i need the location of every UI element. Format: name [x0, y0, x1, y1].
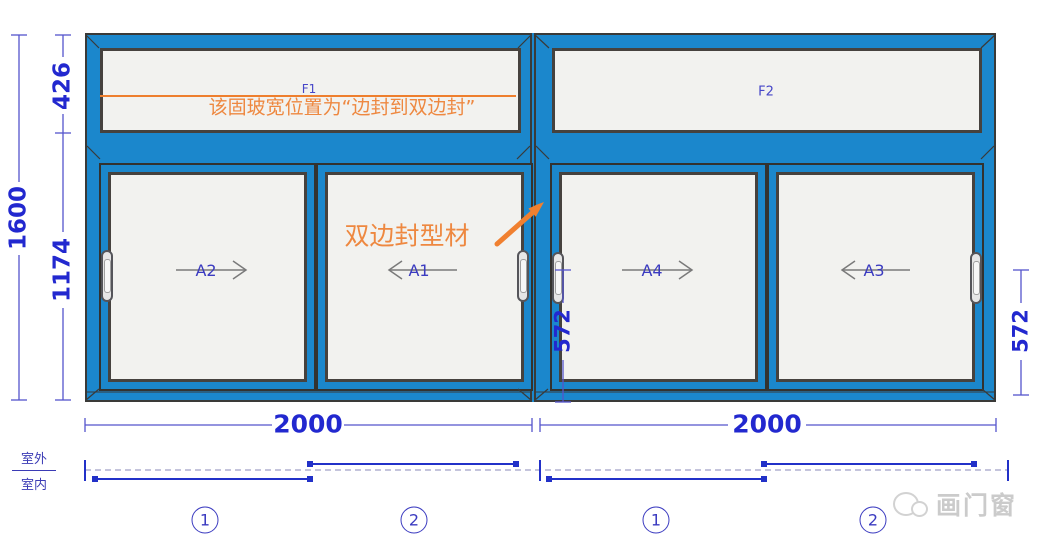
dim-total-height[interactable]: 1600: [8, 186, 31, 250]
chat-bubble-small-icon: [911, 501, 928, 517]
track-position-2-right: 2: [860, 507, 887, 534]
dim-left-width[interactable]: 2000: [273, 412, 343, 437]
handle-a1[interactable]: [517, 250, 529, 302]
sash-label-a4[interactable]: A4: [641, 263, 662, 279]
dim-top-fixed-height[interactable]: 426: [52, 62, 75, 110]
sash-label-a1[interactable]: A1: [408, 263, 429, 279]
outside-label: 室外: [12, 446, 56, 471]
fixed-glass-note: 该固玻宽位置为“边封到双边封”: [209, 99, 476, 118]
handle-a3[interactable]: [970, 252, 982, 304]
outside-inside-legend: 室外 室内: [12, 446, 56, 495]
dim-right-width[interactable]: 2000: [732, 412, 802, 437]
handle-grip: [555, 261, 562, 295]
track-position-2-left: 2: [401, 507, 428, 534]
track-position-1-right: 1: [643, 507, 670, 534]
handle-a2[interactable]: [101, 250, 113, 302]
watermark: 画门窗: [893, 486, 1017, 522]
inside-label: 室内: [12, 471, 56, 495]
dim-mid-sash-height[interactable]: 572: [553, 309, 574, 353]
window-design-canvas: F1 F2 A2 A1 A4 A3 该固玻宽位置为“边封到双边封” 双边封型材 …: [0, 0, 1060, 550]
watermark-brand: 画门窗: [936, 486, 1017, 522]
dim-slider-height[interactable]: 1174: [52, 238, 75, 302]
track-position-1-left: 1: [192, 507, 219, 534]
sash-label-a3[interactable]: A3: [863, 263, 884, 279]
track-diagram-lines: [85, 460, 1008, 482]
handle-a4[interactable]: [552, 252, 564, 304]
dim-right-sash-height[interactable]: 572: [1011, 309, 1032, 353]
handle-grip: [520, 259, 527, 293]
sash-label-a2[interactable]: A2: [195, 263, 216, 279]
panel-label-f1[interactable]: F1: [302, 83, 317, 95]
handle-grip: [104, 259, 111, 293]
panel-label-f2[interactable]: F2: [758, 86, 774, 99]
mullion-note: 双边封型材: [344, 224, 469, 249]
handle-grip: [973, 261, 980, 295]
